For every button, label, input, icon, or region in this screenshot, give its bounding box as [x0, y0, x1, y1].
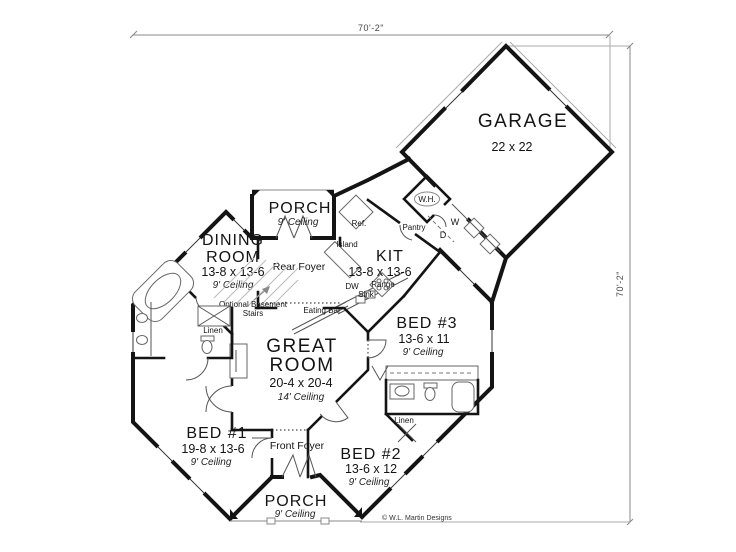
- great-room: GREAT ROOM 20-4 x 20-4 14' Ceiling: [206, 308, 386, 430]
- bedroom-3: BED #3 13-6 x 11 9' Ceiling Linen: [372, 315, 478, 442]
- bed2-ceiling-label: 9' Ceiling: [349, 477, 390, 488]
- top-dimension-label: 70'-2": [358, 23, 384, 33]
- rear-porch-label: PORCH: [269, 200, 332, 217]
- bed3-closet: [372, 366, 478, 380]
- bed1-size-label: 19-8 x 13-6: [181, 442, 244, 456]
- bed2-label: BED #2: [340, 446, 401, 463]
- range-label: Range: [371, 280, 395, 289]
- toilet: [201, 336, 214, 354]
- dining-size-label: 13-8 x 13-6: [201, 265, 264, 279]
- great-room-label-1: GREAT: [266, 336, 338, 357]
- bed1-ceiling-label: 9' Ceiling: [191, 457, 232, 468]
- dining-room: DINING ROOM 13-8 x 13-6 9' Ceiling: [201, 232, 264, 291]
- bedroom-1: BED #1 19-8 x 13-6 9' Ceiling: [181, 425, 272, 477]
- great-room-ceiling-label: 14' Ceiling: [278, 392, 325, 403]
- dryer-label: D: [440, 230, 447, 240]
- pantry-label: Pantry: [402, 223, 425, 232]
- front-porch-label: PORCH: [265, 493, 328, 510]
- bed3-label: BED #3: [396, 315, 457, 332]
- rear-porch: PORCH 9' Ceiling: [252, 190, 334, 238]
- great-room-label-2: ROOM: [269, 355, 334, 376]
- linen-closet-left: Linen: [198, 306, 230, 335]
- copyright-text: © W.L. Martin Designs: [382, 514, 452, 522]
- dining-label-1: DINING: [202, 232, 264, 249]
- bed3-size-label: 13-6 x 11: [398, 332, 449, 346]
- dining-label-2: ROOM: [206, 249, 260, 266]
- stairs-label-2: Stairs: [243, 309, 263, 318]
- dw-label: DW: [345, 282, 359, 291]
- garage-size-label: 22 x 22: [491, 140, 532, 154]
- floor-plan-page: 70'-2" 70'-2" GARAGE 22 x 22 W.H. Pantry: [0, 0, 736, 552]
- linen-closet-right: Linen: [386, 414, 416, 442]
- linen-left-label: Linen: [203, 326, 223, 335]
- bed1-label: BED #1: [186, 425, 247, 442]
- bed3-ceiling-label: 9' Ceiling: [403, 347, 444, 358]
- kitchen-size-label: 13-8 x 13-6: [348, 265, 411, 279]
- front-porch: PORCH 9' Ceiling: [230, 455, 362, 524]
- great-room-size-label: 20-4 x 20-4: [269, 376, 332, 390]
- kitchen-label: KIT: [376, 248, 404, 265]
- washer-label: W: [451, 217, 460, 227]
- bed2-size-label: 13-6 x 12: [345, 462, 397, 476]
- island-label: Island: [336, 240, 357, 249]
- sink-label: Sink: [358, 290, 375, 299]
- water-heater-label: W.H.: [418, 195, 435, 204]
- hall-bath: [386, 380, 478, 414]
- floor-plan-drawing: 70'-2" 70'-2" GARAGE 22 x 22 W.H. Pantry: [0, 0, 736, 552]
- garage: GARAGE 22 x 22: [396, 42, 616, 258]
- right-dimension-label: 70'-2": [615, 271, 625, 297]
- rear-foyer-label: Rear Foyer: [273, 261, 326, 273]
- front-porch-ceiling-label: 9' Ceiling: [275, 509, 316, 520]
- rear-porch-ceiling-label: 9' Ceiling: [278, 217, 319, 228]
- garage-label: GARAGE: [478, 111, 568, 132]
- linen-right-label: Linen: [394, 416, 414, 425]
- front-foyer-label: Front Foyer: [270, 440, 325, 452]
- dining-ceiling-label: 9' Ceiling: [213, 280, 254, 291]
- ref-label: Ref.: [352, 219, 367, 228]
